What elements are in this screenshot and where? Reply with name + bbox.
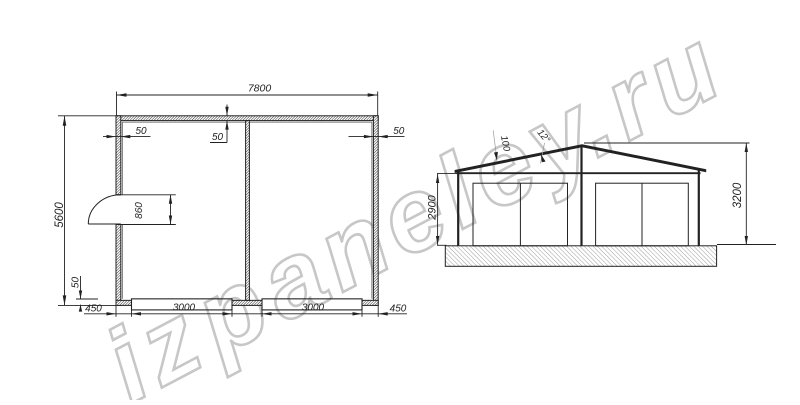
svg-text:3000: 3000 bbox=[302, 302, 325, 313]
svg-text:5600: 5600 bbox=[54, 202, 66, 228]
svg-text:3000: 3000 bbox=[173, 302, 196, 313]
svg-text:450: 450 bbox=[390, 304, 407, 315]
svg-text:860: 860 bbox=[134, 202, 145, 219]
svg-text:3200: 3200 bbox=[732, 182, 744, 208]
svg-text:450: 450 bbox=[85, 304, 102, 315]
svg-text:2900: 2900 bbox=[427, 194, 439, 220]
svg-text:50: 50 bbox=[212, 132, 224, 143]
svg-text:50: 50 bbox=[71, 277, 82, 289]
svg-text:50: 50 bbox=[135, 126, 147, 137]
svg-text:7800: 7800 bbox=[248, 83, 272, 95]
svg-text:50: 50 bbox=[393, 126, 405, 137]
